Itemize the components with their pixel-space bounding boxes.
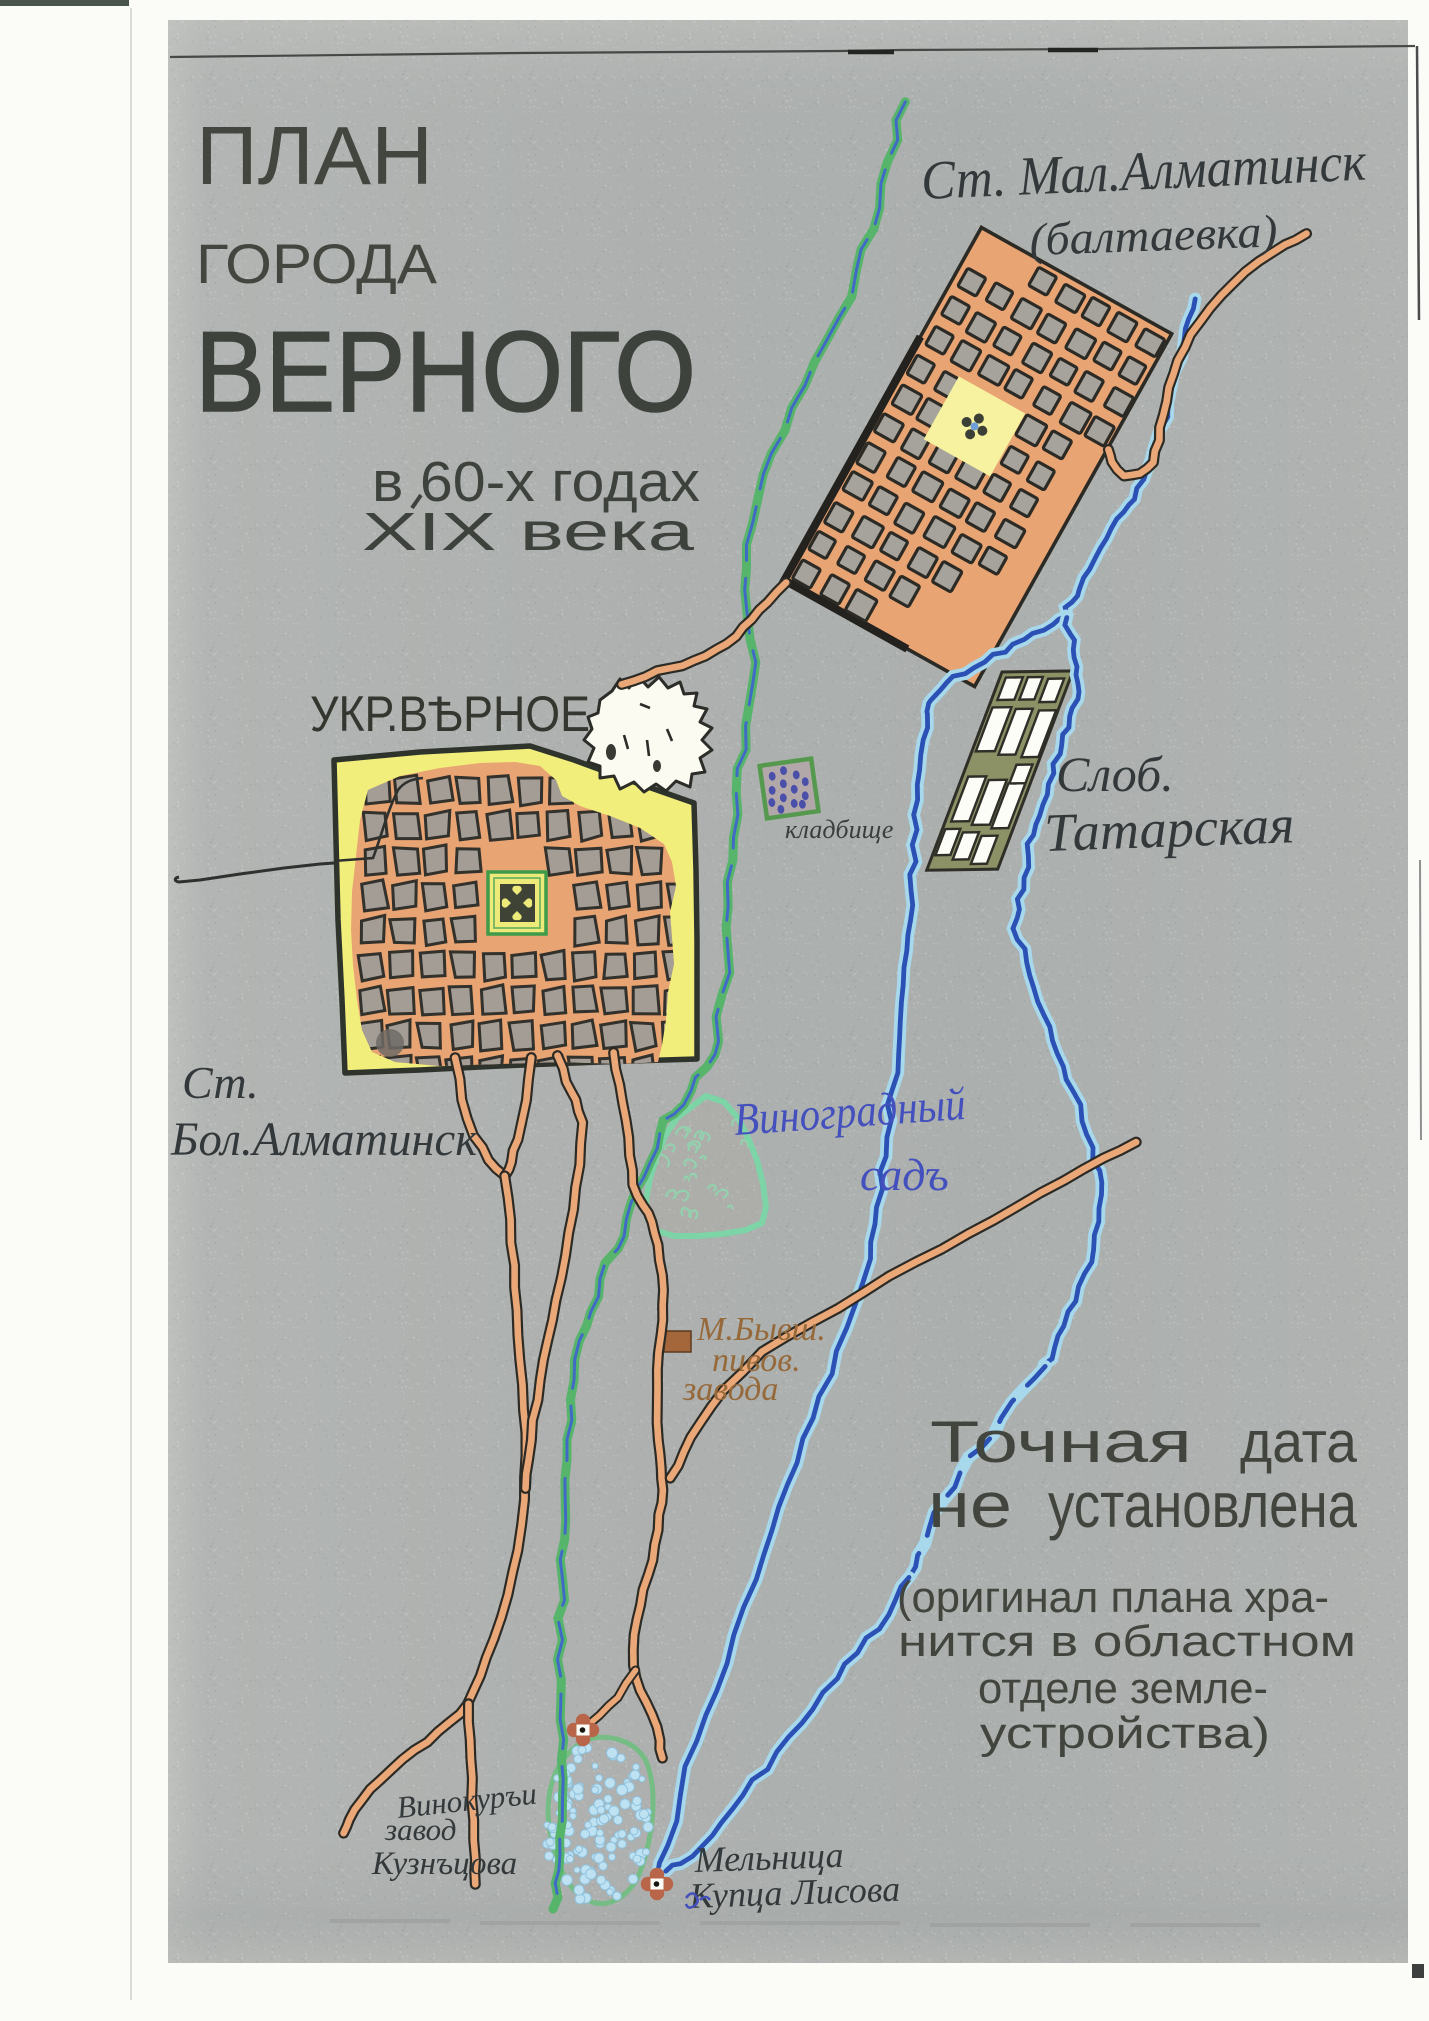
svg-text:кладбище: кладбище [785, 815, 893, 844]
svg-text:садъ: садъ [860, 1149, 949, 1200]
svg-text:ВЕРНОГО: ВЕРНОГО [195, 309, 696, 436]
svg-text:дата: дата [1240, 1410, 1358, 1475]
svg-text:Татарская: Татарская [1043, 794, 1295, 863]
svg-text:УКР.ВѢРНОЕ: УКР.ВѢРНОЕ [310, 686, 590, 742]
svg-text:завод: завод [384, 1812, 456, 1847]
svg-text:XIX века: XIX века [362, 502, 695, 562]
svg-text:Точная: Точная [930, 1410, 1192, 1475]
svg-text:ГОРОДА: ГОРОДА [196, 232, 438, 295]
svg-text:ПЛАН: ПЛАН [196, 109, 433, 202]
svg-text:нится в областном: нится в областном [898, 1617, 1356, 1666]
svg-text:устройства): устройства) [980, 1709, 1270, 1758]
svg-text:Купца Лисова: Купца Лисова [688, 1869, 901, 1916]
svg-text:(балтаевка): (балтаевка) [1029, 205, 1279, 265]
svg-text:установлена: установлена [1048, 1469, 1357, 1541]
svg-text:не: не [928, 1469, 1012, 1541]
svg-text:отделе земле-: отделе земле- [978, 1664, 1268, 1713]
svg-text:Бол.Алматинск: Бол.Алматинск [170, 1113, 477, 1166]
svg-text:Кузнъцова: Кузнъцова [371, 1846, 517, 1882]
svg-text:Ст.: Ст. [182, 1057, 259, 1108]
svg-text:завода: завода [682, 1371, 778, 1408]
svg-text:Слоб.: Слоб. [1056, 746, 1174, 802]
svg-text:(оригинал плана хра-: (оригинал плана хра- [897, 1573, 1329, 1622]
